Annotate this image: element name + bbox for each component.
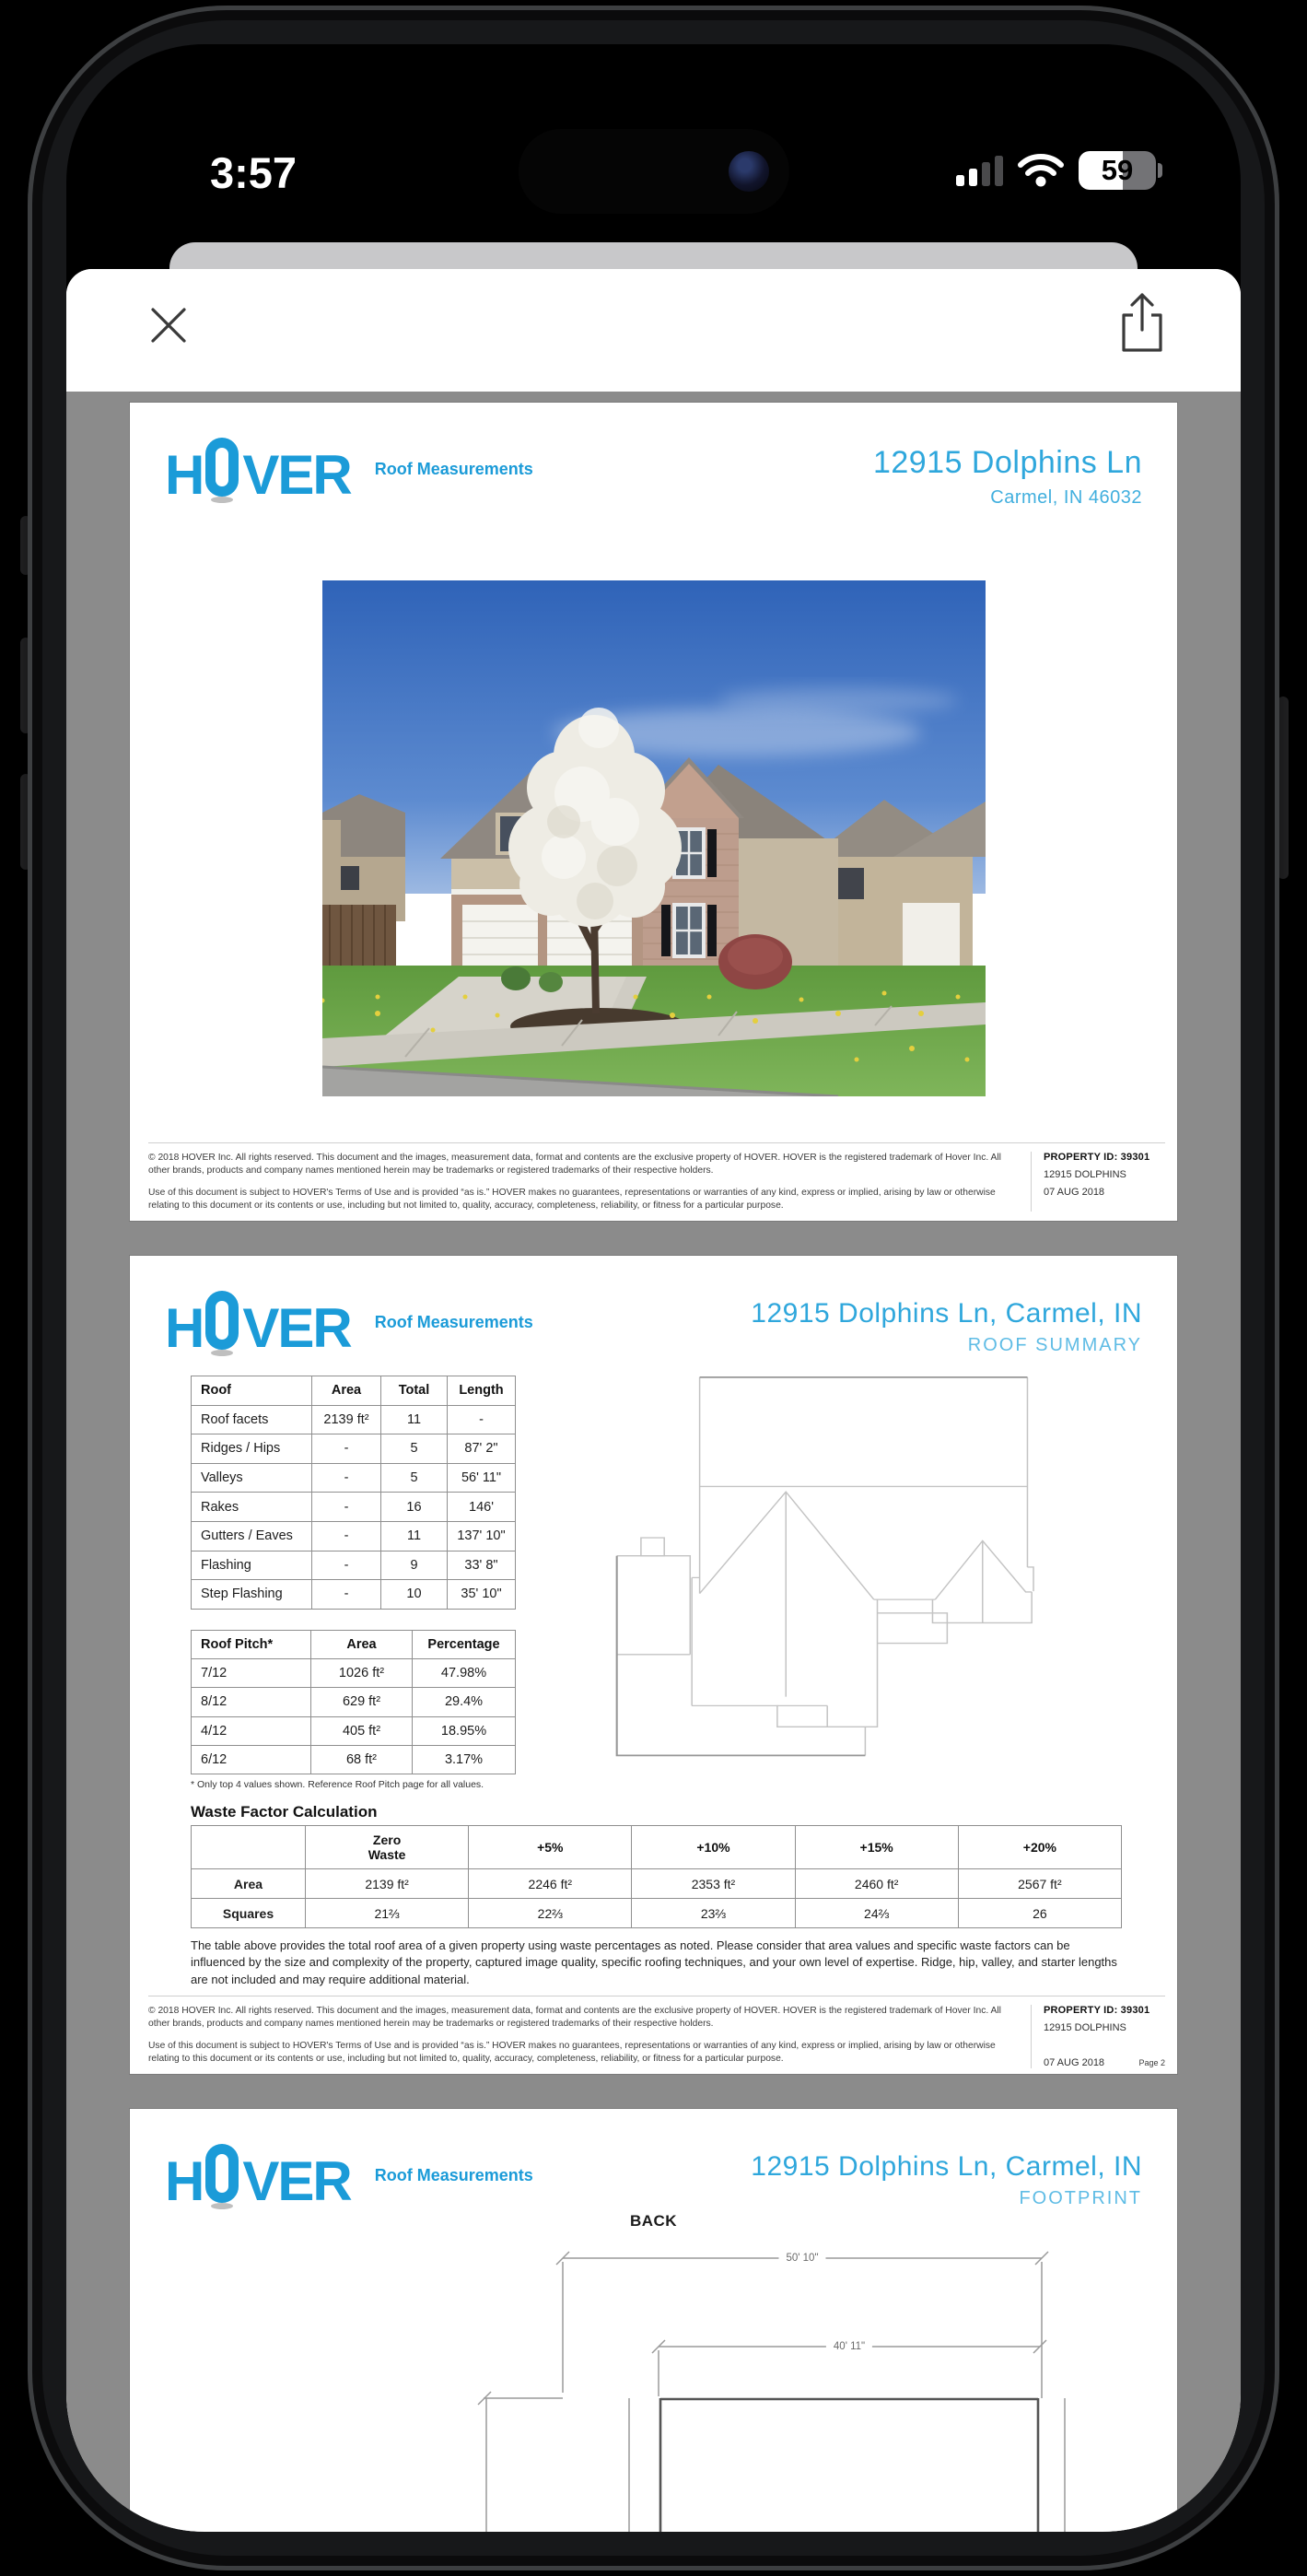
status-icons: 59: [956, 151, 1156, 190]
report-date: 07 AUG 2018: [1044, 2057, 1104, 2068]
table-cell: 11: [381, 1405, 448, 1434]
table-cell: -: [312, 1521, 381, 1551]
table-row: 7/121026 ft²47.98%: [192, 1659, 516, 1688]
hover-logo: HVER: [165, 438, 351, 497]
close-button[interactable]: [146, 302, 192, 348]
property-id: PROPERTY ID: 39301: [1044, 2005, 1165, 2016]
table-header-row: Roof Pitch*AreaPercentage: [192, 1631, 516, 1659]
hover-logo: HVER: [165, 1291, 351, 1350]
property-short-address: 12915 DOLPHINS: [1044, 2022, 1165, 2033]
roof-diagram: [613, 1373, 1061, 1757]
table-cell: 146': [448, 1493, 516, 1522]
hover-logo-o: [205, 2144, 239, 2203]
table-cell: 2139 ft²: [312, 1405, 381, 1434]
column-header: +5%: [469, 1826, 632, 1869]
waste-factor-title: Waste Factor Calculation: [191, 1803, 377, 1821]
legal-paragraph: Use of this document is subject to HOVER…: [148, 2040, 1009, 2065]
column-header: Length: [448, 1376, 516, 1406]
share-icon: [1116, 291, 1168, 356]
cellular-signal-icon: [956, 155, 1003, 186]
table-cell: 47.98%: [413, 1659, 516, 1688]
table-row: Gutters / Eaves-11137' 10": [192, 1521, 516, 1551]
page-number: Page 2: [1138, 2058, 1165, 2067]
page-title: 12915 Dolphins Ln, Carmel, IN: [751, 1298, 1142, 1329]
dimension-label-outer: 50' 10": [778, 2253, 825, 2264]
battery-icon: 59: [1079, 151, 1156, 190]
column-header: +20%: [958, 1826, 1121, 1869]
phone-screen: 3:57 59: [66, 44, 1241, 2532]
table-header-row: RoofAreaTotalLength: [192, 1376, 516, 1406]
footprint-diagram: 50' 10" 40' 11": [130, 2201, 1177, 2532]
column-header: [192, 1826, 306, 1869]
report-page-footprint: HVER Roof Measurements 12915 Dolphins Ln…: [130, 2109, 1177, 2532]
pdf-viewer[interactable]: HVER Roof Measurements 12915 Dolphins Ln…: [66, 392, 1241, 2532]
table-row: Area2139 ft²2246 ft²2353 ft²2460 ft²2567…: [192, 1869, 1122, 1899]
table-cell: Flashing: [192, 1551, 312, 1580]
column-header: Roof: [192, 1376, 312, 1406]
table-cell: 2460 ft²: [795, 1869, 958, 1899]
preview-toolbar: [66, 269, 1241, 392]
camera-icon: [729, 151, 769, 192]
property-id: PROPERTY ID: 39301: [1044, 1152, 1165, 1163]
table-cell: 33' 8": [448, 1551, 516, 1580]
property-city: Carmel, IN 46032: [873, 487, 1142, 509]
table-cell: 26: [958, 1899, 1121, 1928]
property-address: 12915 Dolphins Ln: [873, 445, 1142, 481]
table-cell: 2139 ft²: [306, 1869, 469, 1899]
table-cell: Roof facets: [192, 1405, 312, 1434]
table-cell: 18.95%: [413, 1716, 516, 1745]
roof-measurements-table: RoofAreaTotalLengthRoof facets2139 ft²11…: [191, 1376, 516, 1610]
table-cell: -: [312, 1493, 381, 1522]
table-cell: 87' 2": [448, 1434, 516, 1464]
table-cell: 11: [381, 1521, 448, 1551]
table-cell: 137' 10": [448, 1521, 516, 1551]
report-date: 07 AUG 2018: [1044, 1187, 1104, 1198]
table-cell: Gutters / Eaves: [192, 1521, 312, 1551]
table-row: Roof facets2139 ft²11-: [192, 1405, 516, 1434]
table-row: 8/12629 ft²29.4%: [192, 1688, 516, 1716]
hover-logo-o: [205, 1291, 239, 1350]
table-cell: Ridges / Hips: [192, 1434, 312, 1464]
table-cell: 29.4%: [413, 1688, 516, 1716]
table-cell: 9: [381, 1551, 448, 1580]
table-cell: 68 ft²: [311, 1745, 413, 1774]
table-cell: 2567 ft²: [958, 1869, 1121, 1899]
column-header: Zero Waste: [306, 1826, 469, 1869]
close-icon: [146, 302, 192, 348]
page-footer: © 2018 HOVER Inc. All rights reserved. T…: [148, 1142, 1165, 1212]
waste-factor-table: Zero Waste+5%+10%+15%+20%Area2139 ft²224…: [191, 1825, 1122, 1928]
document-preview-sheet: HVER Roof Measurements 12915 Dolphins Ln…: [66, 269, 1241, 2532]
table-cell: 1026 ft²: [311, 1659, 413, 1688]
report-page-cover: HVER Roof Measurements 12915 Dolphins Ln…: [130, 403, 1177, 1221]
page-subtitle: ROOF SUMMARY: [751, 1335, 1142, 1356]
page-title: 12915 Dolphins Ln, Carmel, IN: [751, 2151, 1142, 2183]
table-cell: 4/12: [192, 1716, 311, 1745]
table-cell: Step Flashing: [192, 1580, 312, 1610]
table-row: Ridges / Hips-587' 2": [192, 1434, 516, 1464]
wifi-icon: [1018, 153, 1064, 188]
table-cell: 405 ft²: [311, 1716, 413, 1745]
table-cell: -: [312, 1580, 381, 1610]
table-cell: 56' 11": [448, 1463, 516, 1493]
table-cell: 24⅔: [795, 1899, 958, 1928]
dimension-label-inner: 40' 11": [826, 2341, 872, 2352]
property-short-address: 12915 DOLPHINS: [1044, 1169, 1165, 1180]
column-header: +10%: [632, 1826, 795, 1869]
table-cell: -: [448, 1405, 516, 1434]
table-cell: Area: [192, 1869, 306, 1899]
table-cell: 22⅔: [469, 1899, 632, 1928]
table-row: Flashing-933' 8": [192, 1551, 516, 1580]
table-row: Step Flashing-1035' 10": [192, 1580, 516, 1610]
table-cell: 6/12: [192, 1745, 311, 1774]
status-time: 3:57: [175, 147, 332, 198]
waste-factor-note: The table above provides the total roof …: [191, 1938, 1124, 1988]
table-cell: 5: [381, 1463, 448, 1493]
table-cell: 2353 ft²: [632, 1869, 795, 1899]
table-cell: 23⅔: [632, 1899, 795, 1928]
column-header: Percentage: [413, 1631, 516, 1659]
table-row: 4/12405 ft²18.95%: [192, 1716, 516, 1745]
legal-paragraph: © 2018 HOVER Inc. All rights reserved. T…: [148, 1152, 1009, 1177]
table-cell: 8/12: [192, 1688, 311, 1716]
report-type-label: Roof Measurements: [375, 460, 533, 479]
hover-logo: HVER: [165, 2144, 351, 2203]
table-row: 6/1268 ft²3.17%: [192, 1745, 516, 1774]
table-cell: Rakes: [192, 1493, 312, 1522]
hover-logo-o: [205, 438, 239, 497]
column-header: Area: [311, 1631, 413, 1659]
table-cell: -: [312, 1551, 381, 1580]
page-footer: © 2018 HOVER Inc. All rights reserved. T…: [148, 1996, 1165, 2068]
table-cell: Valleys: [192, 1463, 312, 1493]
table-row: Squares21⅔22⅔23⅔24⅔26: [192, 1899, 1122, 1928]
report-page-roof-summary: HVER Roof Measurements 12915 Dolphins Ln…: [130, 1256, 1177, 2074]
table-cell: 5: [381, 1434, 448, 1464]
table-row: Rakes-16146': [192, 1493, 516, 1522]
house-photo: [322, 580, 986, 1096]
table-cell: 21⅔: [306, 1899, 469, 1928]
column-header: Roof Pitch*: [192, 1631, 311, 1659]
table-cell: 3.17%: [413, 1745, 516, 1774]
table-cell: -: [312, 1434, 381, 1464]
table-cell: Squares: [192, 1899, 306, 1928]
roof-pitch-table: Roof Pitch*AreaPercentage7/121026 ft²47.…: [191, 1630, 516, 1774]
battery-percent: 59: [1079, 151, 1156, 190]
table-cell: 2246 ft²: [469, 1869, 632, 1899]
dynamic-island: [519, 129, 789, 214]
table-cell: 10: [381, 1580, 448, 1610]
table-cell: 629 ft²: [311, 1688, 413, 1716]
share-button[interactable]: [1116, 291, 1168, 356]
legal-paragraph: Use of this document is subject to HOVER…: [148, 1187, 1009, 1212]
table-cell: 7/12: [192, 1659, 311, 1688]
column-header: +15%: [795, 1826, 958, 1869]
column-header: Area: [312, 1376, 381, 1406]
report-type-label: Roof Measurements: [375, 2166, 533, 2185]
table-cell: 16: [381, 1493, 448, 1522]
column-header: Total: [381, 1376, 448, 1406]
pitch-footnote: * Only top 4 values shown. Reference Roo…: [191, 1779, 484, 1790]
table-cell: 35' 10": [448, 1580, 516, 1610]
report-type-label: Roof Measurements: [375, 1313, 533, 1332]
legal-paragraph: © 2018 HOVER Inc. All rights reserved. T…: [148, 2005, 1009, 2030]
table-row: Valleys-556' 11": [192, 1463, 516, 1493]
table-cell: -: [312, 1463, 381, 1493]
table-header-row: Zero Waste+5%+10%+15%+20%: [192, 1826, 1122, 1869]
